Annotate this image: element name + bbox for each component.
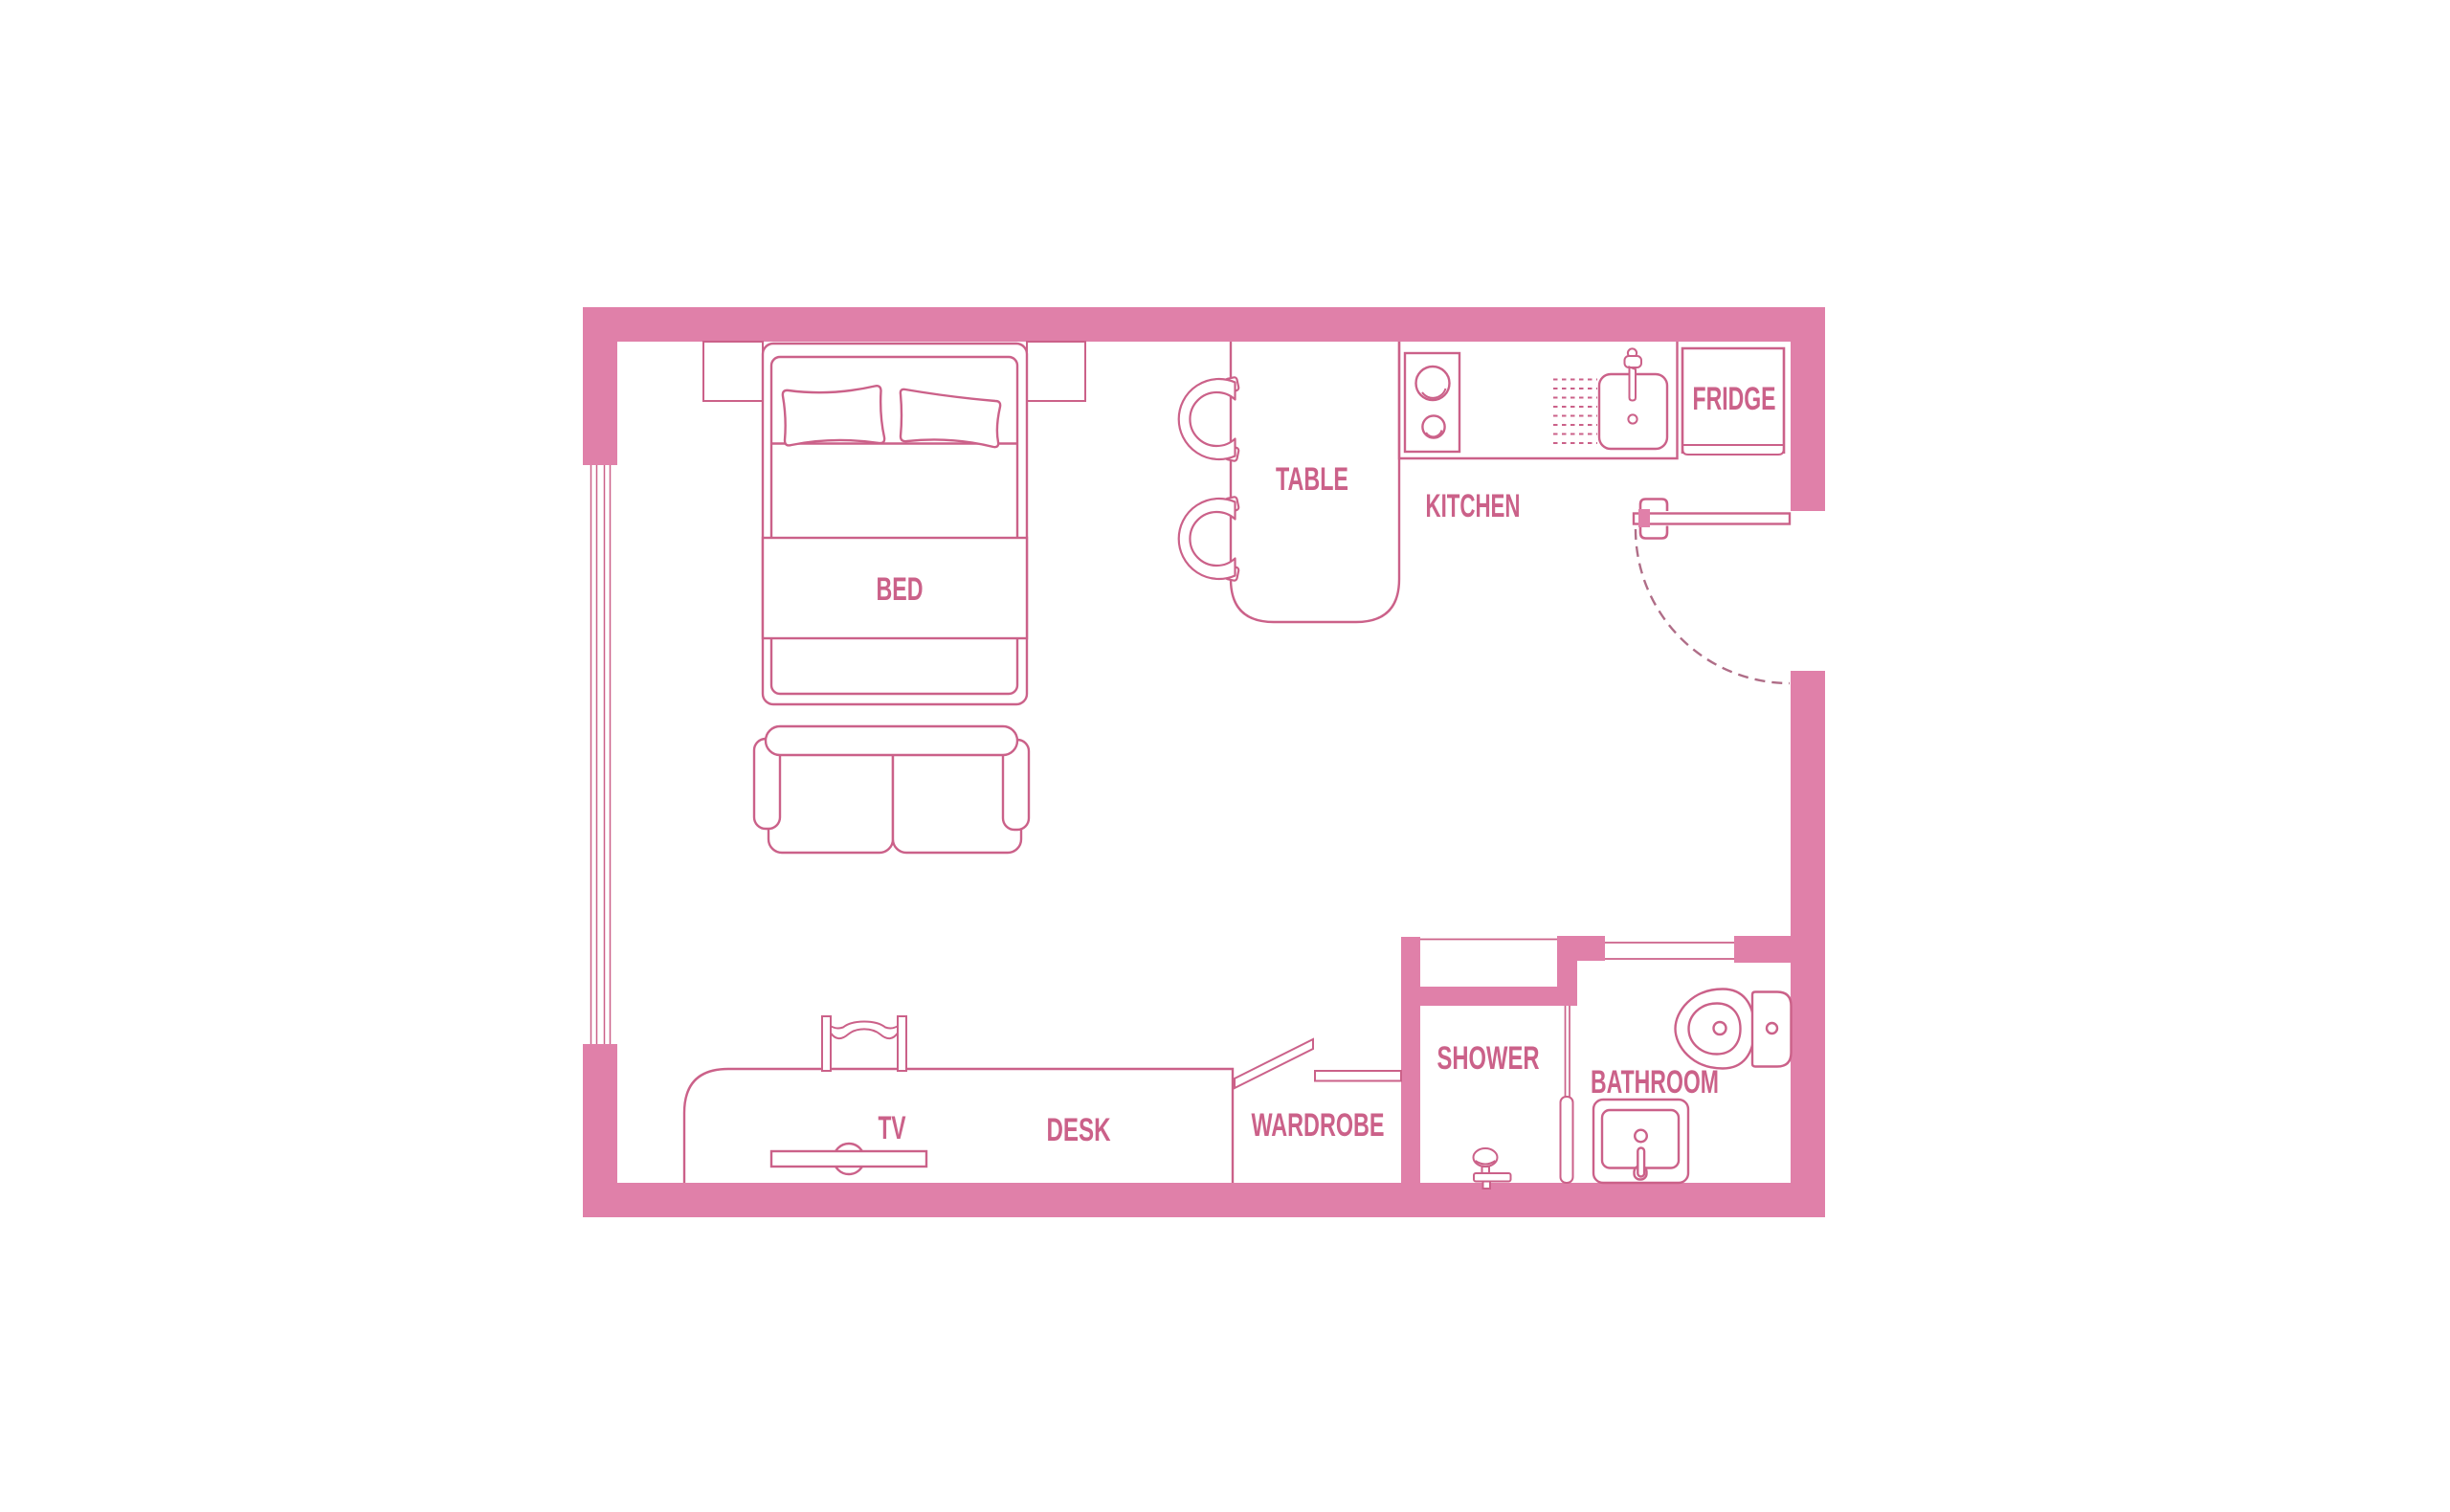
svg-text:FRIDGE: FRIDGE (1693, 381, 1776, 417)
svg-text:KITCHEN: KITCHEN (1426, 488, 1521, 524)
svg-text:TV: TV (879, 1110, 906, 1146)
svg-text:WARDROBE: WARDROBE (1252, 1107, 1385, 1144)
svg-text:BED: BED (877, 571, 924, 608)
svg-text:BATHROOM: BATHROOM (1591, 1064, 1719, 1101)
svg-text:TABLE: TABLE (1276, 461, 1348, 498)
svg-text:DESK: DESK (1047, 1112, 1111, 1148)
svg-text:SHOWER: SHOWER (1437, 1040, 1540, 1077)
